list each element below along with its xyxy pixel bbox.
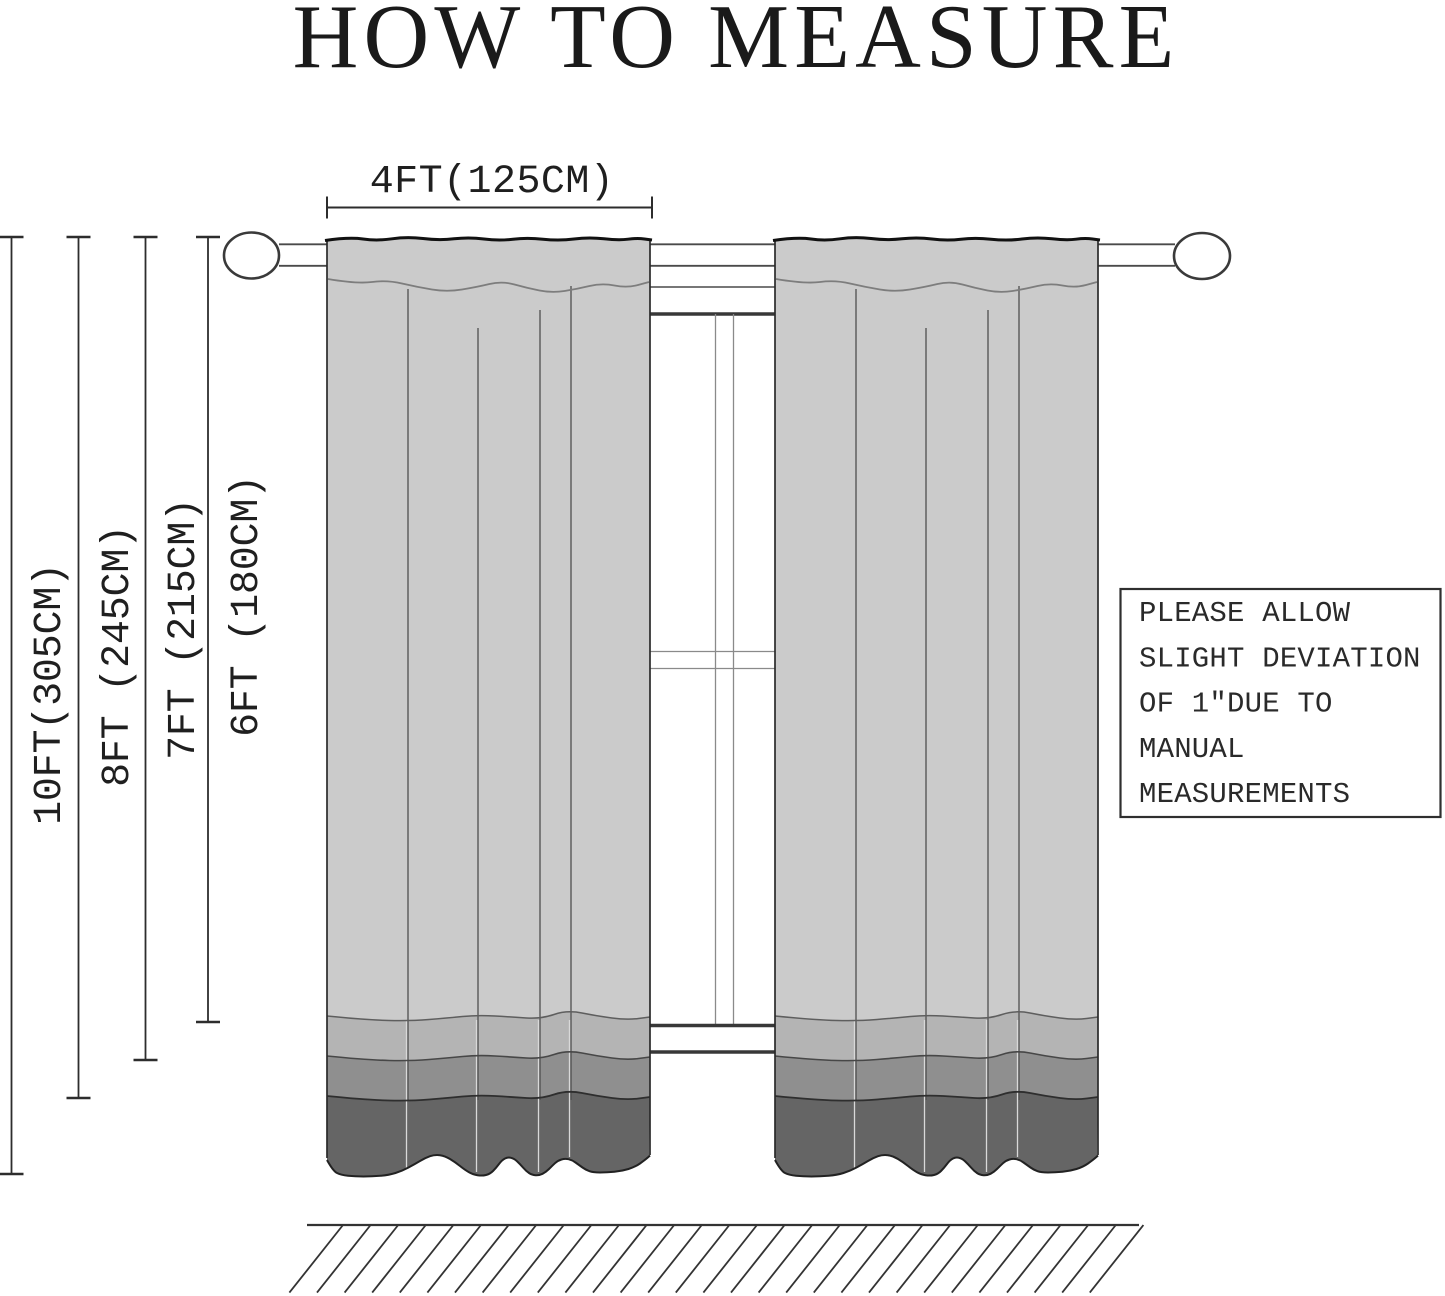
svg-text:4FT(125CM): 4FT(125CM) xyxy=(370,160,615,205)
svg-text:7FT (215CM): 7FT (215CM) xyxy=(162,498,207,760)
svg-text:8FT (245CM): 8FT (245CM) xyxy=(96,525,141,787)
svg-text:6FT (180CM): 6FT (180CM) xyxy=(225,475,270,737)
svg-text:HOW TO MEASURE: HOW TO MEASURE xyxy=(293,0,1180,87)
svg-text:10FT(305CM): 10FT(305CM) xyxy=(28,563,73,825)
